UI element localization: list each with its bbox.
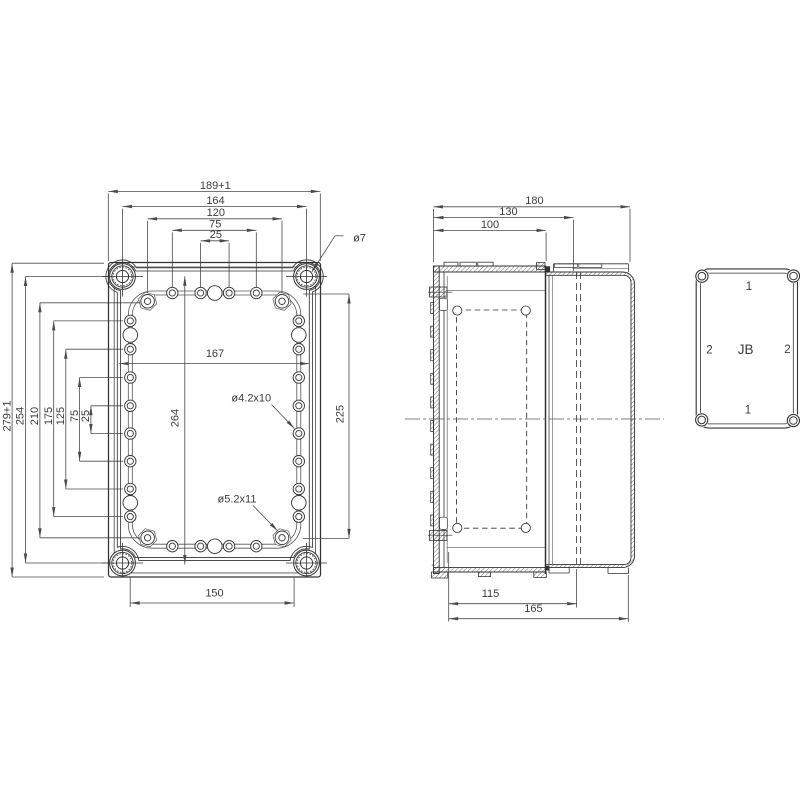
svg-text:130: 130 (499, 206, 517, 218)
svg-text:189+1: 189+1 (200, 180, 231, 192)
svg-text:164: 164 (206, 195, 224, 207)
svg-text:120: 120 (207, 207, 225, 219)
svg-text:ø5.2x11: ø5.2x11 (218, 494, 257, 506)
svg-text:264: 264 (170, 409, 182, 427)
svg-text:2: 2 (706, 345, 712, 357)
svg-text:225: 225 (335, 405, 347, 423)
svg-text:JB: JB (738, 342, 754, 357)
svg-text:125: 125 (55, 407, 67, 425)
svg-text:254: 254 (15, 407, 27, 425)
svg-text:165: 165 (524, 603, 542, 615)
svg-text:75: 75 (69, 410, 81, 422)
svg-text:1: 1 (746, 281, 752, 293)
svg-text:100: 100 (481, 219, 499, 231)
svg-text:279+1: 279+1 (1, 401, 13, 432)
svg-text:1: 1 (745, 405, 751, 417)
svg-text:210: 210 (29, 407, 41, 425)
svg-text:115: 115 (482, 588, 500, 600)
svg-text:2: 2 (784, 344, 790, 356)
svg-text:ø7: ø7 (353, 233, 366, 245)
svg-text:180: 180 (525, 195, 543, 207)
svg-text:150: 150 (205, 587, 223, 599)
svg-text:25: 25 (210, 229, 222, 241)
svg-text:ø4.2x10: ø4.2x10 (231, 393, 271, 405)
svg-text:167: 167 (206, 348, 224, 360)
svg-text:175: 175 (43, 407, 55, 425)
svg-text:25: 25 (80, 410, 92, 422)
